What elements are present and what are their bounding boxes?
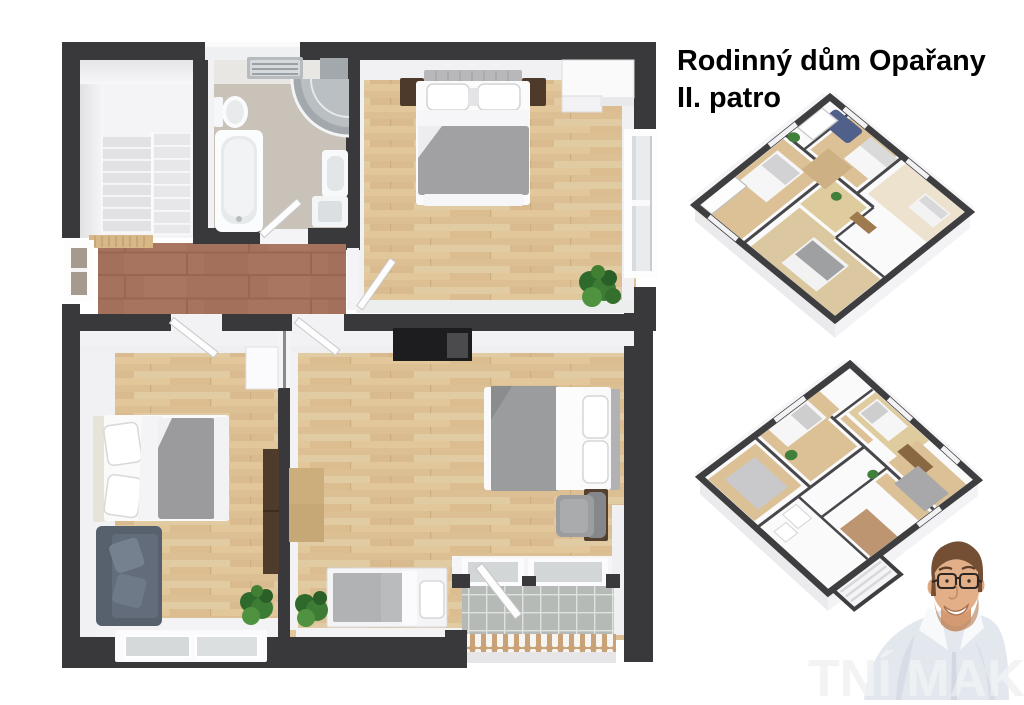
svg-text:II. patro: II. patro xyxy=(677,82,781,114)
svg-text:Rodinný dům Opařany: Rodinný dům Opařany xyxy=(677,45,986,77)
svg-text:TNÍ MAKL: TNÍ MAKL xyxy=(808,650,1024,700)
